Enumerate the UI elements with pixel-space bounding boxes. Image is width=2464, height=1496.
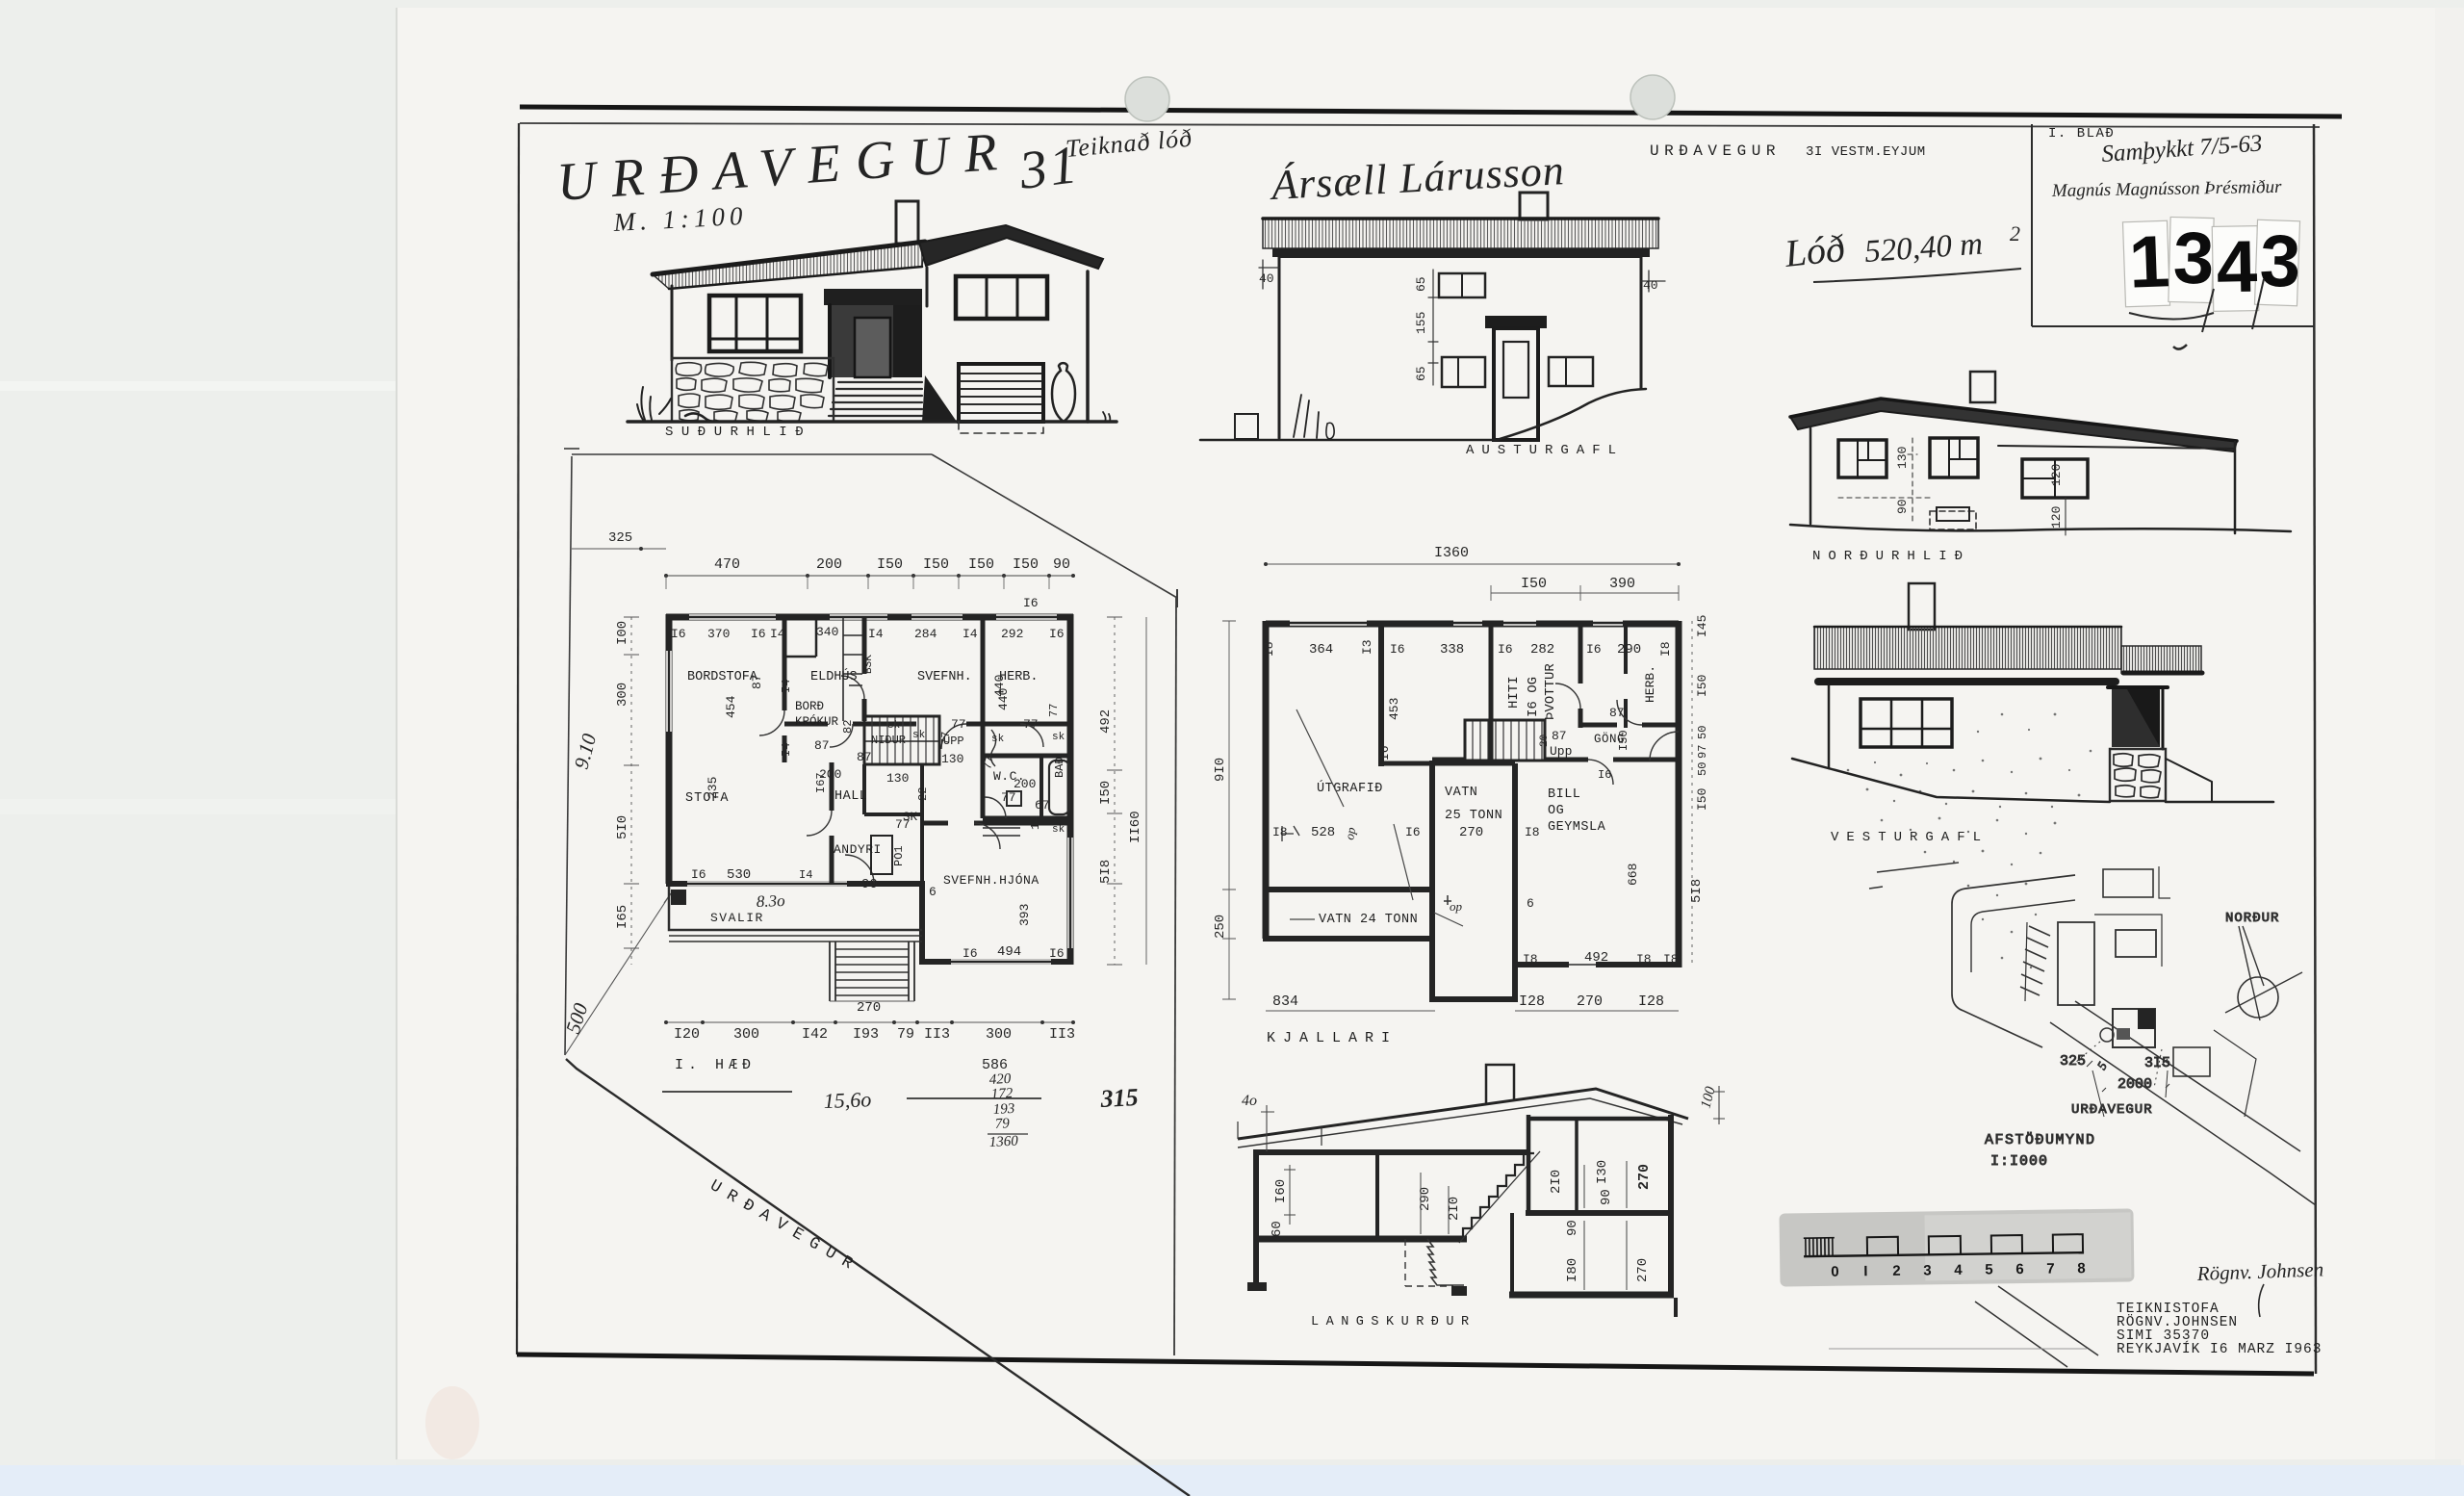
- svg-text:I45: I45: [1695, 615, 1709, 637]
- svg-text:I6: I6: [691, 867, 706, 882]
- svg-text:Lóð: Lóð: [1782, 226, 1847, 275]
- svg-text:492: 492: [1584, 950, 1608, 966]
- svg-text:NORÐURHLIÐ: NORÐURHLIÐ: [1812, 549, 1970, 564]
- svg-text:40: 40: [1259, 271, 1274, 286]
- svg-text:60: 60: [1270, 1221, 1285, 1237]
- svg-text:BILL: BILL: [1548, 787, 1580, 802]
- svg-text:668: 668: [1626, 864, 1640, 886]
- svg-text:7: 7: [2046, 1261, 2055, 1277]
- svg-text:I50: I50: [1013, 556, 1039, 573]
- svg-text:3: 3: [2172, 218, 2215, 300]
- svg-text:325: 325: [2060, 1053, 2086, 1070]
- svg-text:I8: I8: [1525, 825, 1540, 839]
- svg-text:5I8: 5I8: [1098, 860, 1114, 884]
- svg-text:97: 97: [1696, 745, 1709, 759]
- svg-text:II3: II3: [924, 1026, 950, 1043]
- svg-text:82: 82: [841, 720, 855, 734]
- svg-text:4o: 4o: [1242, 1093, 1257, 1109]
- svg-text:I50: I50: [1521, 576, 1547, 592]
- svg-text:I30: I30: [1595, 1160, 1610, 1184]
- svg-text:I8: I8: [1636, 952, 1652, 967]
- svg-text:65: 65: [1414, 366, 1428, 381]
- svg-text:BSK: BSK: [863, 655, 875, 674]
- svg-text:URÐAVEGUR: URÐAVEGUR: [2071, 1102, 2153, 1118]
- svg-text:270: 270: [1636, 1164, 1653, 1190]
- svg-text:155: 155: [1414, 312, 1428, 334]
- svg-text:I6: I6: [1586, 642, 1602, 657]
- svg-text:440: 440: [992, 675, 1007, 697]
- svg-text:2I0: 2I0: [1549, 1170, 1564, 1194]
- svg-text:4: 4: [2216, 226, 2258, 309]
- svg-text:HALL: HALL: [834, 789, 867, 804]
- svg-text:20: 20: [1539, 735, 1551, 747]
- svg-text:325: 325: [608, 530, 632, 546]
- svg-text:I80: I80: [1565, 1258, 1580, 1282]
- svg-text:GEYMSLA: GEYMSLA: [1548, 820, 1606, 835]
- svg-text:235: 235: [706, 777, 720, 799]
- svg-text:VATN 24 TONN: VATN 24 TONN: [1319, 913, 1418, 927]
- svg-text:87: 87: [1552, 729, 1567, 743]
- svg-text:338: 338: [1440, 642, 1464, 658]
- svg-text:282: 282: [1530, 642, 1554, 658]
- svg-text:130: 130: [1895, 447, 1910, 469]
- svg-text:528: 528: [1311, 825, 1335, 840]
- svg-text:530: 530: [727, 867, 751, 883]
- svg-text:I8: I8: [1272, 825, 1288, 839]
- svg-text:90: 90: [1599, 1189, 1614, 1205]
- svg-text:sk: sk: [1052, 732, 1065, 743]
- svg-text:6: 6: [929, 885, 937, 899]
- svg-text:I8: I8: [1663, 952, 1679, 967]
- svg-text:300: 300: [615, 683, 630, 707]
- svg-text:3I VESTM.EYJUM: 3I VESTM.EYJUM: [1806, 144, 1926, 160]
- svg-text:193: 193: [992, 1101, 1014, 1118]
- svg-text:90: 90: [1565, 1220, 1580, 1236]
- svg-text:sk.: sk.: [1052, 824, 1071, 836]
- svg-text:NIÐUR: NIÐUR: [871, 734, 906, 747]
- svg-text:I: I: [1863, 1263, 1867, 1279]
- svg-text:HERB.: HERB.: [1643, 665, 1657, 703]
- svg-text:LANGSKURÐUR: LANGSKURÐUR: [1311, 1315, 1476, 1329]
- svg-text:492: 492: [1098, 709, 1114, 734]
- svg-text:130: 130: [886, 771, 909, 786]
- svg-text:4: 4: [1954, 1262, 1963, 1278]
- svg-text:I. HÆÐ: I. HÆÐ: [675, 1057, 756, 1073]
- svg-text:3I5: 3I5: [2144, 1055, 2170, 1071]
- svg-text:OG: OG: [1548, 804, 1564, 818]
- svg-text:50: 50: [1696, 726, 1709, 739]
- svg-text:I50: I50: [923, 556, 949, 573]
- svg-text:BORÐ: BORÐ: [795, 700, 824, 713]
- svg-text:I6: I6: [962, 946, 978, 961]
- svg-text:I4: I4: [780, 743, 793, 757]
- svg-text:390: 390: [1609, 576, 1635, 592]
- svg-text:I8: I8: [1523, 952, 1538, 967]
- svg-text:77: 77: [951, 717, 966, 732]
- svg-text:I4: I4: [962, 627, 978, 641]
- svg-text:REYKJAVÍK I6 MARZ I963: REYKJAVÍK I6 MARZ I963: [2117, 1340, 2322, 1357]
- svg-text:PÓ1: PÓ1: [891, 845, 906, 866]
- svg-text:0: 0: [1831, 1264, 1839, 1280]
- svg-text:SVEFNH.: SVEFNH.: [917, 670, 972, 684]
- svg-text:87: 87: [1609, 706, 1625, 720]
- svg-text:1360: 1360: [988, 1133, 1018, 1150]
- svg-text:315: 315: [1099, 1083, 1139, 1113]
- svg-text:270: 270: [857, 1000, 881, 1016]
- svg-text:Magnús Magnússon Þrésmiður: Magnús Magnússon Þrésmiður: [2051, 177, 2282, 201]
- svg-text:5I0: 5I0: [615, 815, 630, 839]
- svg-text:250: 250: [1213, 915, 1228, 939]
- svg-text:8: 8: [2077, 1260, 2086, 1277]
- svg-text:ANDYRI: ANDYRI: [834, 842, 882, 857]
- svg-text:SVEFNH.HJÓNA: SVEFNH.HJÓNA: [943, 873, 1039, 888]
- svg-text:5I8: 5I8: [1689, 879, 1705, 903]
- svg-text:65: 65: [1414, 276, 1428, 292]
- svg-text:I67: I67: [814, 772, 828, 793]
- svg-text:470: 470: [714, 556, 740, 573]
- svg-text:VATN: VATN: [1445, 786, 1477, 800]
- svg-text:270: 270: [1635, 1258, 1651, 1282]
- svg-text:I360: I360: [1434, 545, 1469, 561]
- svg-text:67: 67: [1035, 798, 1050, 812]
- svg-text:I00: I00: [615, 621, 630, 645]
- svg-text:ELDHÚS: ELDHÚS: [810, 669, 858, 684]
- svg-text:I8: I8: [1262, 641, 1276, 657]
- svg-text:BAÐ: BAÐ: [1053, 757, 1066, 778]
- svg-text:9I0: 9I0: [1213, 758, 1228, 782]
- svg-text:sk: sk: [912, 730, 926, 741]
- svg-text:87: 87: [857, 750, 872, 764]
- svg-text:I60: I60: [1273, 1179, 1289, 1203]
- svg-text:I6: I6: [1390, 642, 1405, 657]
- svg-text:Rögnv. Johnsen: Rögnv. Johnsen: [2195, 1257, 2323, 1285]
- svg-text:364: 364: [1309, 642, 1333, 658]
- svg-text:270: 270: [1577, 993, 1603, 1010]
- svg-text:I6 OG: I6 OG: [1526, 677, 1541, 717]
- svg-text:77: 77: [1047, 704, 1061, 717]
- svg-text:340: 340: [816, 625, 838, 639]
- svg-text:I:I000: I:I000: [1990, 1153, 2048, 1170]
- svg-text:22: 22: [916, 787, 930, 801]
- svg-text:5: 5: [1985, 1261, 1993, 1277]
- svg-text:I6: I6: [1598, 768, 1611, 782]
- svg-text:77: 77: [895, 817, 911, 832]
- svg-text:453: 453: [1387, 698, 1401, 720]
- svg-text:NORÐUR: NORÐUR: [2225, 911, 2279, 926]
- svg-text:URÐAVEGUR: URÐAVEGUR: [1650, 142, 1781, 160]
- svg-text:I50: I50: [1617, 730, 1630, 751]
- svg-text:AFSTÖÐUMYND: AFSTÖÐUMYND: [1985, 1131, 2096, 1148]
- svg-text:op: op: [1450, 899, 1463, 914]
- svg-text:77: 77: [1023, 717, 1039, 732]
- svg-text:I4: I4: [799, 868, 812, 882]
- svg-text:90: 90: [1895, 499, 1910, 514]
- svg-text:3: 3: [1923, 1262, 1932, 1278]
- svg-text:I3: I3: [1360, 639, 1374, 655]
- svg-text:I93: I93: [853, 1026, 879, 1043]
- svg-text:284: 284: [914, 627, 937, 641]
- svg-text:AUSTURGAFL: AUSTURGAFL: [1466, 443, 1624, 458]
- svg-text:I4: I4: [868, 627, 884, 641]
- svg-text:120: 120: [2049, 464, 2064, 486]
- svg-text:834: 834: [1272, 993, 1298, 1010]
- svg-text:90: 90: [1053, 556, 1070, 573]
- svg-text:I50: I50: [1695, 788, 1709, 811]
- svg-text:87: 87: [750, 674, 764, 689]
- svg-text:I6: I6: [1049, 946, 1065, 961]
- svg-text:25 TONN: 25 TONN: [1445, 809, 1502, 823]
- svg-text:I50: I50: [1098, 781, 1114, 805]
- svg-text:292: 292: [1001, 627, 1023, 641]
- svg-text:I4: I4: [770, 627, 785, 641]
- svg-text:454: 454: [724, 695, 738, 718]
- svg-text:15,6o: 15,6o: [823, 1087, 871, 1113]
- svg-text:I20: I20: [674, 1026, 700, 1043]
- svg-text:494: 494: [997, 944, 1021, 960]
- svg-text:3: 3: [2259, 219, 2302, 302]
- svg-text:I. BLAÐ: I. BLAÐ: [2048, 126, 2115, 142]
- svg-text:I50: I50: [968, 556, 994, 573]
- svg-text:270: 270: [1459, 825, 1483, 840]
- svg-text:6: 6: [1527, 896, 1534, 911]
- svg-text:I4: I4: [780, 680, 793, 693]
- svg-text:sk: sk: [991, 734, 1005, 745]
- svg-text:I6: I6: [1377, 745, 1392, 761]
- svg-text:50: 50: [1696, 762, 1709, 776]
- svg-text:8.3o: 8.3o: [756, 891, 784, 911]
- svg-text:I65: I65: [615, 905, 630, 929]
- svg-text:1: 1: [2127, 220, 2170, 303]
- svg-text:87: 87: [814, 738, 830, 753]
- svg-text:290: 290: [1418, 1187, 1433, 1211]
- svg-text:130: 130: [941, 752, 963, 766]
- svg-text:172: 172: [990, 1086, 1014, 1102]
- svg-text:200: 200: [1014, 777, 1036, 791]
- svg-text:79: 79: [994, 1116, 1010, 1132]
- svg-text:ÚTGRAFIÐ: ÚTGRAFIÐ: [1317, 781, 1383, 796]
- svg-text:I50: I50: [877, 556, 903, 573]
- svg-text:KRÓKUR: KRÓKUR: [795, 714, 839, 729]
- svg-text:SVALIR: SVALIR: [710, 911, 764, 925]
- svg-text:VESTURGAFL: VESTURGAFL: [1831, 830, 1989, 845]
- svg-text:I6: I6: [751, 627, 766, 641]
- svg-text:BORDSTOFA: BORDSTOFA: [687, 670, 758, 684]
- svg-text:77: 77: [981, 755, 997, 771]
- svg-text:I6: I6: [1498, 642, 1513, 657]
- svg-text:I6: I6: [1049, 627, 1065, 641]
- svg-text:SUÐURHLIÐ: SUÐURHLIÐ: [665, 425, 811, 440]
- svg-text:I6: I6: [1023, 596, 1039, 610]
- svg-text:II60: II60: [1128, 811, 1143, 843]
- svg-text:300: 300: [986, 1026, 1012, 1043]
- svg-text:77: 77: [939, 732, 953, 745]
- svg-text:200: 200: [816, 556, 842, 573]
- svg-text:ÞVOTTUR: ÞVOTTUR: [1543, 663, 1558, 720]
- svg-text:14: 14: [1029, 816, 1042, 830]
- svg-text:I6: I6: [671, 627, 686, 641]
- svg-text:393: 393: [1017, 904, 1032, 926]
- svg-text:79: 79: [897, 1026, 914, 1043]
- svg-text:I50: I50: [1695, 675, 1709, 697]
- svg-text:2: 2: [1892, 1263, 1901, 1279]
- svg-text:Upp: Upp: [1550, 744, 1572, 759]
- svg-text:I6: I6: [1405, 825, 1421, 839]
- svg-text:I28: I28: [1519, 993, 1545, 1010]
- svg-text:II3: II3: [1049, 1026, 1075, 1043]
- svg-text:2: 2: [2010, 221, 2020, 245]
- svg-text:2000: 2000: [2117, 1076, 2152, 1093]
- svg-text:40: 40: [1643, 278, 1658, 293]
- svg-text:HITI: HITI: [1506, 676, 1522, 709]
- svg-text:370: 370: [707, 627, 730, 641]
- svg-text:300: 300: [733, 1026, 759, 1043]
- svg-text:I8: I8: [1658, 641, 1673, 657]
- svg-text:I28: I28: [1638, 993, 1664, 1010]
- svg-text:I42: I42: [802, 1026, 828, 1043]
- svg-text:77: 77: [1001, 790, 1016, 805]
- svg-text:sk: sk: [887, 720, 901, 732]
- svg-text:90: 90: [861, 877, 878, 892]
- svg-text:KJALLARI: KJALLARI: [1267, 1030, 1398, 1046]
- svg-text:120: 120: [2049, 506, 2064, 529]
- svg-text:290: 290: [1617, 642, 1641, 658]
- svg-text:6: 6: [2015, 1261, 2024, 1277]
